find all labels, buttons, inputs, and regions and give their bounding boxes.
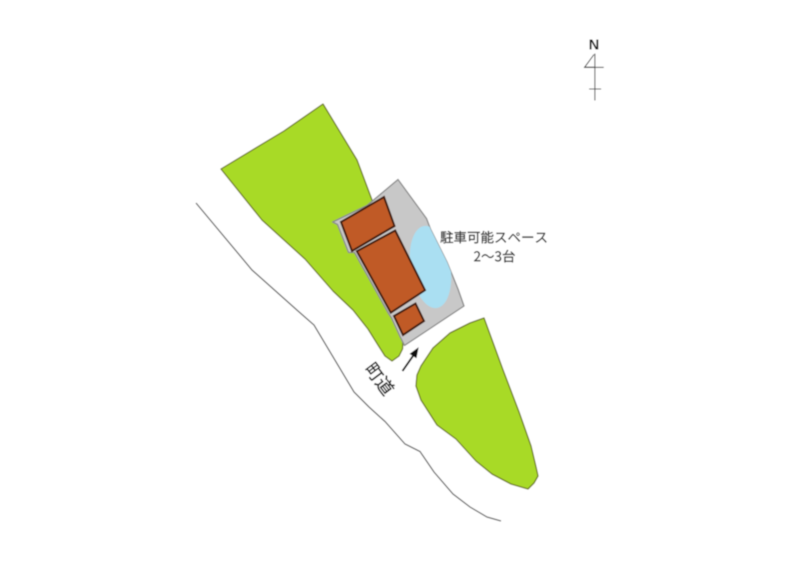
svg-text:N: N — [589, 38, 599, 54]
